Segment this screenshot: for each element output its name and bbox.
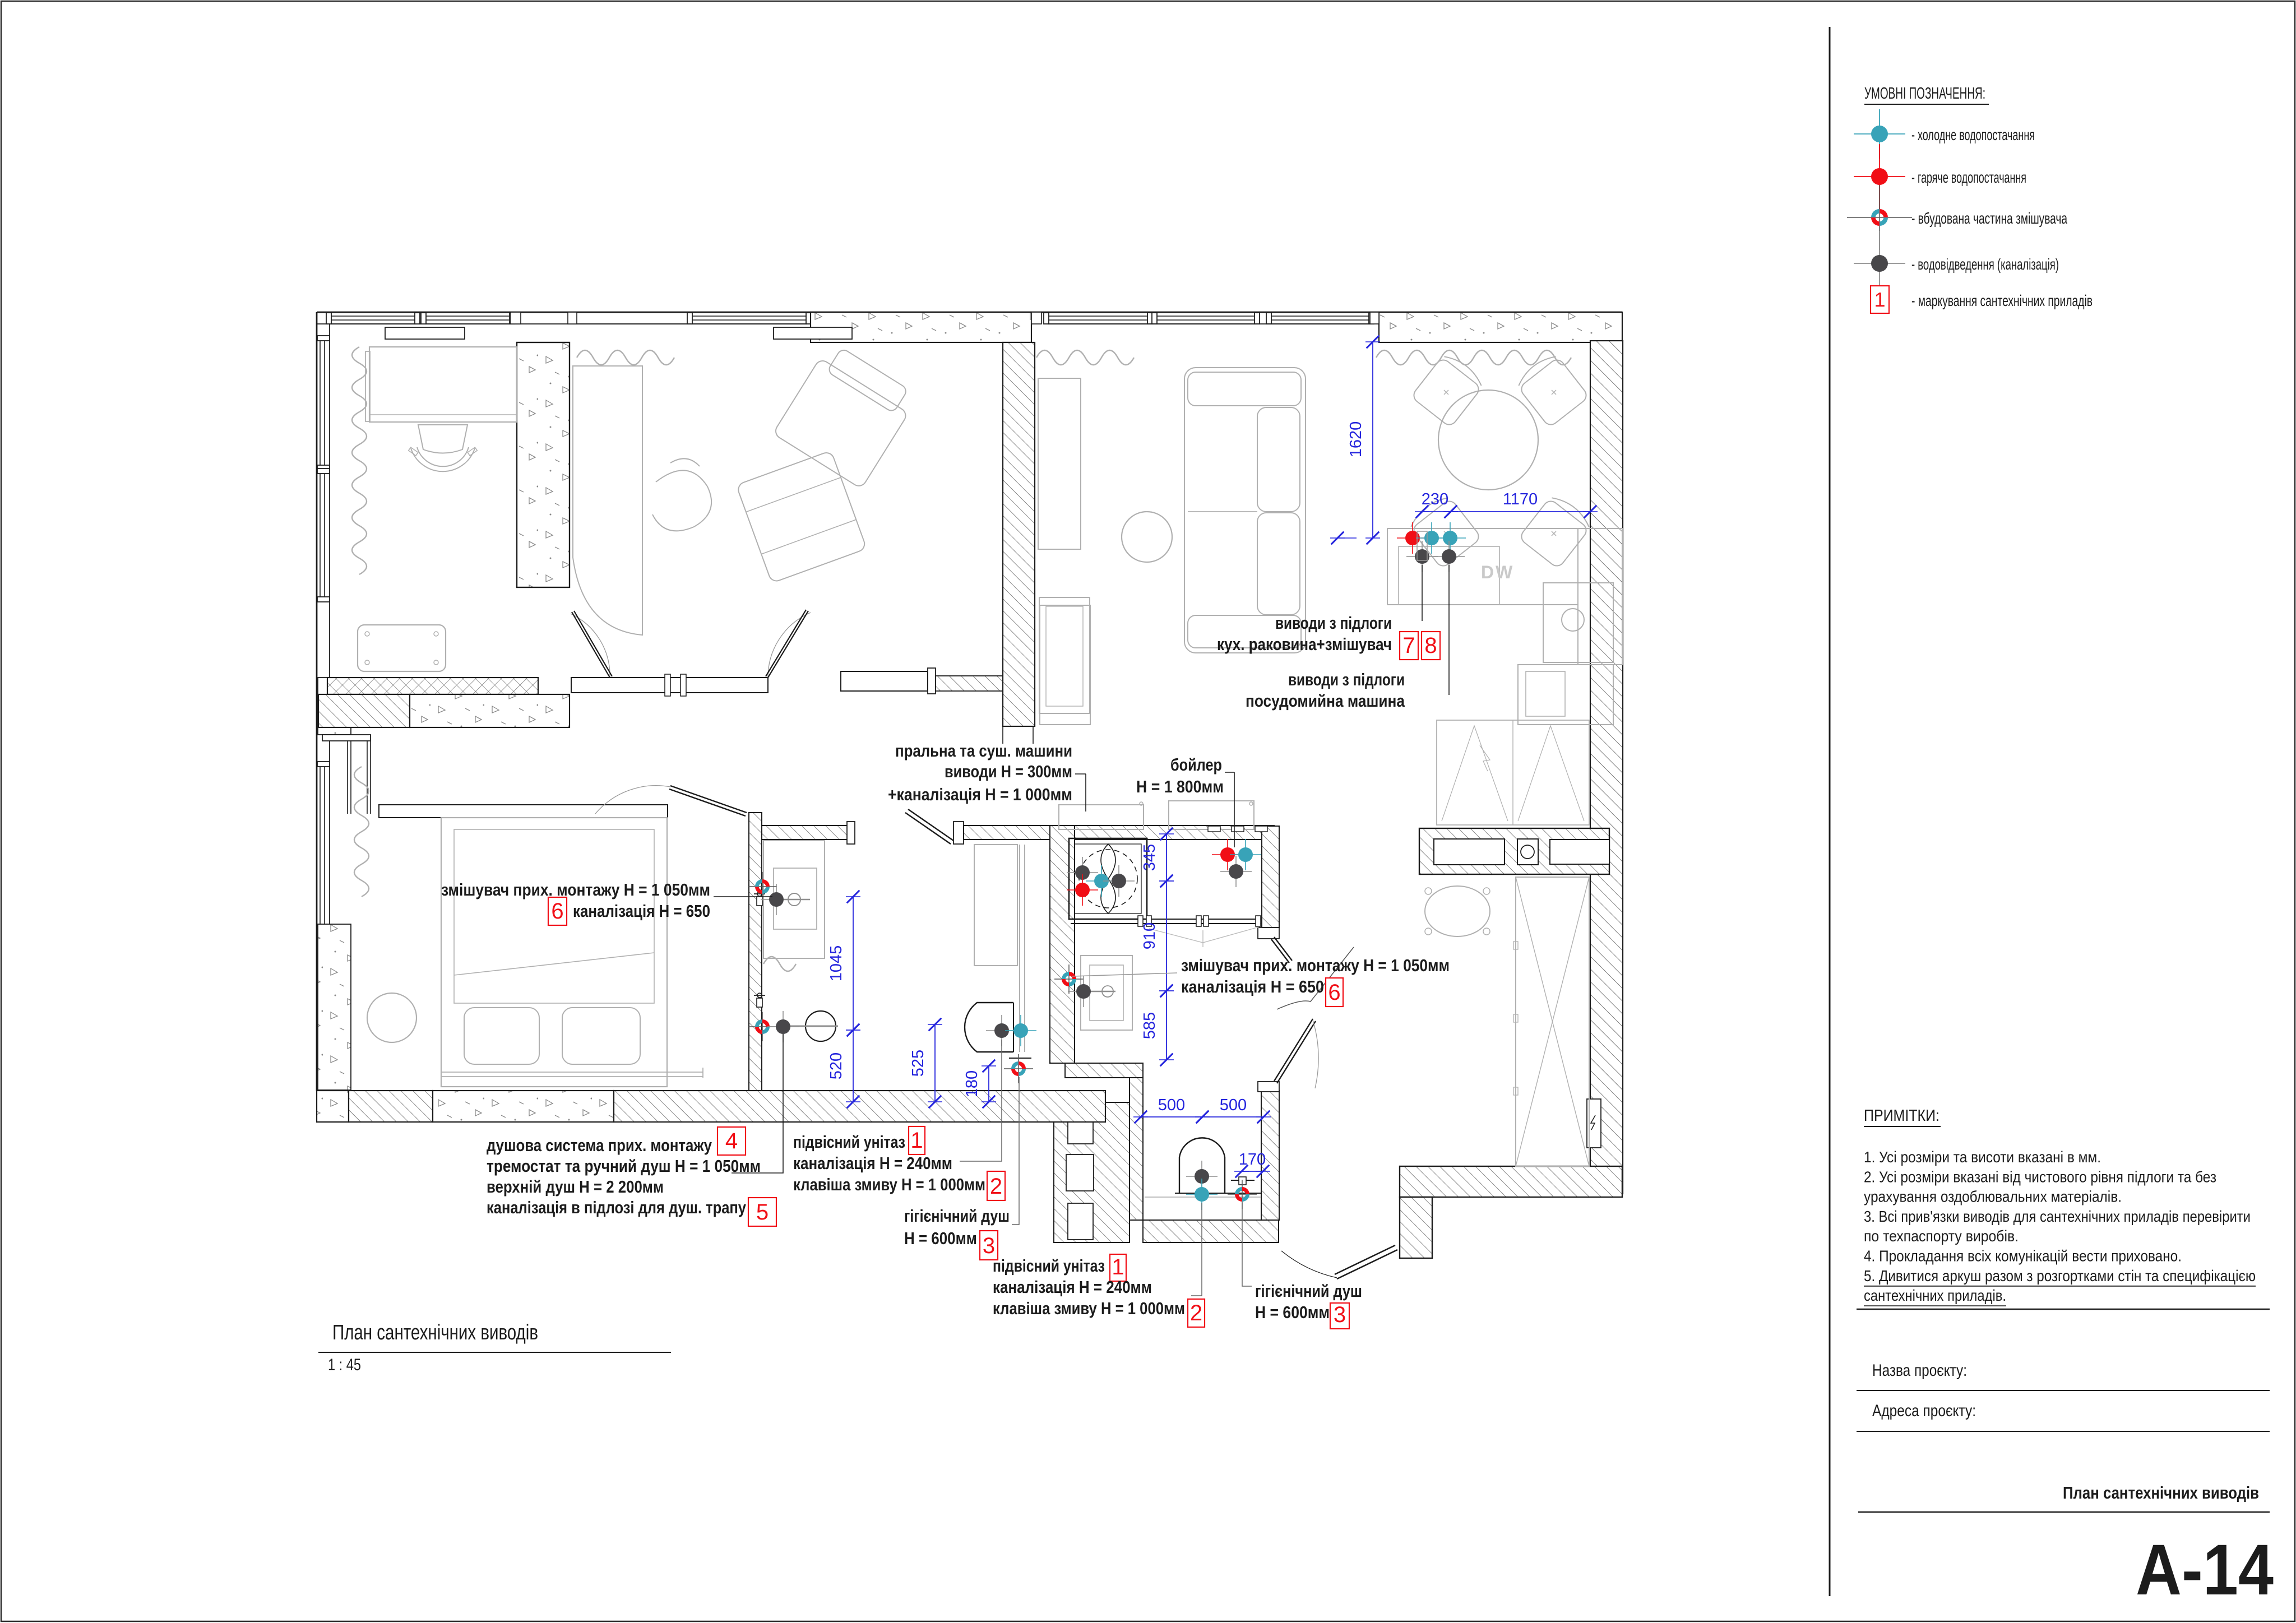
svg-text:3: 3 bbox=[1334, 1302, 1346, 1327]
svg-text:виводи Н = 300мм: виводи Н = 300мм bbox=[945, 762, 1072, 781]
svg-text:Н = 600мм: Н = 600мм bbox=[1255, 1302, 1330, 1322]
svg-text:+каналізація Н = 1 000мм: +каналізація Н = 1 000мм bbox=[888, 785, 1072, 804]
svg-text:6: 6 bbox=[1328, 980, 1340, 1005]
svg-text:1170: 1170 bbox=[1503, 490, 1538, 508]
svg-text:пральна та суш. машини: пральна та суш. машини bbox=[895, 741, 1072, 761]
svg-text:3: 3 bbox=[983, 1234, 995, 1258]
svg-text:525: 525 bbox=[909, 1050, 927, 1077]
svg-text:520: 520 bbox=[827, 1052, 845, 1079]
svg-text:змішувач прих. монтажу Н = 1 0: змішувач прих. монтажу Н = 1 050мм bbox=[441, 880, 710, 899]
svg-text:4. Прокладання всіх комунікаці: 4. Прокладання всіх комунікацій вести пр… bbox=[1864, 1248, 2182, 1265]
svg-text:180: 180 bbox=[963, 1070, 981, 1097]
svg-text:1: 1 bbox=[1874, 288, 1885, 311]
svg-text:сантехнічних приладів.: сантехнічних приладів. bbox=[1864, 1287, 2006, 1304]
svg-text:6: 6 bbox=[551, 899, 563, 924]
svg-text:1 : 45: 1 : 45 bbox=[328, 1356, 361, 1374]
svg-text:Адреса проєкту:: Адреса проєкту: bbox=[1872, 1402, 1976, 1420]
svg-text:170: 170 bbox=[1239, 1151, 1266, 1168]
svg-text:гігієнічний душ: гігієнічний душ bbox=[904, 1206, 1010, 1226]
svg-text:душова система прих. монтажу: душова система прих. монтажу bbox=[487, 1135, 712, 1155]
svg-text:УМОВНІ ПОЗНАЧЕННЯ:: УМОВНІ ПОЗНАЧЕННЯ: bbox=[1864, 85, 1985, 103]
svg-text:План сантехнічних виводів: План сантехнічних виводів bbox=[332, 1321, 538, 1344]
svg-text:DW: DW bbox=[1481, 562, 1514, 582]
svg-text:2: 2 bbox=[1190, 1301, 1202, 1325]
svg-text:гігієнічний душ: гігієнічний душ bbox=[1255, 1281, 1362, 1301]
svg-text:змішувач прих. монтажу Н = 1 0: змішувач прих. монтажу Н = 1 050мм bbox=[1181, 956, 1450, 975]
svg-text:1: 1 bbox=[1112, 1255, 1124, 1279]
svg-text:2: 2 bbox=[990, 1174, 1002, 1199]
svg-text:клавіша змиву Н = 1 000мм: клавіша змиву Н = 1 000мм bbox=[793, 1175, 985, 1194]
svg-text:2. Усі розміри вказані від чис: 2. Усі розміри вказані від чистового рів… bbox=[1864, 1168, 2216, 1185]
svg-text:345: 345 bbox=[1141, 844, 1159, 871]
svg-text:План сантехнічних виводів: План сантехнічних виводів bbox=[2063, 1483, 2259, 1503]
svg-text:8: 8 bbox=[1424, 633, 1437, 658]
svg-text:виводи з підлоги: виводи з підлоги bbox=[1288, 670, 1405, 689]
svg-text:Н = 600мм: Н = 600мм bbox=[904, 1228, 977, 1248]
svg-text:230: 230 bbox=[1422, 490, 1448, 508]
svg-text:підвісний унітаз: підвісний унітаз bbox=[993, 1256, 1105, 1276]
svg-text:5. Дивитися аркуш разом з розг: 5. Дивитися аркуш разом з розгортками ст… bbox=[1864, 1267, 2256, 1285]
svg-text:каналізація Н = 650: каналізація Н = 650 bbox=[1181, 977, 1324, 996]
svg-text:1: 1 bbox=[910, 1128, 923, 1153]
svg-text:кух. раковина+змішувач: кух. раковина+змішувач bbox=[1217, 634, 1392, 654]
svg-text:каналізація Н = 650: каналізація Н = 650 bbox=[573, 901, 710, 921]
svg-text:клавіша змиву Н = 1 000мм: клавіша змиву Н = 1 000мм bbox=[993, 1299, 1185, 1318]
svg-text:1620: 1620 bbox=[1347, 421, 1365, 458]
svg-text:3. Всі прив'язки виводів для с: 3. Всі прив'язки виводів для сантехнічни… bbox=[1864, 1208, 2251, 1225]
svg-text:тремостат та ручний душ Н = 1: тремостат та ручний душ Н = 1 050мм bbox=[487, 1156, 761, 1176]
svg-text:- вбудована частина змішувача: - вбудована частина змішувача bbox=[1911, 210, 2067, 227]
svg-text:верхній душ Н = 2 200мм: верхній душ Н = 2 200мм bbox=[487, 1177, 664, 1197]
svg-text:- гаряче водопостачання: - гаряче водопостачання bbox=[1911, 169, 2026, 186]
svg-text:1. Усі розміри та висоти вказа: 1. Усі розміри та висоти вказані в мм. bbox=[1864, 1148, 2101, 1166]
svg-text:бойлер: бойлер bbox=[1170, 755, 1222, 775]
svg-text:посудомийна машина: посудомийна машина bbox=[1246, 691, 1405, 711]
svg-text:- холодне водопостачання: - холодне водопостачання bbox=[1911, 126, 2035, 143]
svg-text:каналізація Н = 240мм: каналізація Н = 240мм bbox=[993, 1277, 1152, 1297]
svg-text:Н = 1 800мм: Н = 1 800мм bbox=[1136, 777, 1224, 796]
svg-text:- маркування сантехнічних прил: - маркування сантехнічних приладів bbox=[1911, 292, 2093, 309]
svg-text:1045: 1045 bbox=[827, 945, 845, 982]
svg-text:585: 585 bbox=[1141, 1012, 1159, 1039]
svg-text:4: 4 bbox=[725, 1129, 738, 1153]
svg-text:каналізація в підлозі для душ.: каналізація в підлозі для душ. трапу bbox=[487, 1198, 747, 1217]
svg-text:- водовідведення (каналізація): - водовідведення (каналізація) bbox=[1911, 256, 2059, 273]
svg-text:ПРИМІТКИ:: ПРИМІТКИ: bbox=[1864, 1107, 1939, 1125]
svg-text:910: 910 bbox=[1141, 922, 1159, 949]
svg-text:підвісний унітаз: підвісний унітаз bbox=[793, 1132, 905, 1152]
svg-text:Назва проєкту:: Назва проєкту: bbox=[1872, 1361, 1967, 1380]
svg-text:урахування оздоблювальних мате: урахування оздоблювальних матеріалів. bbox=[1864, 1188, 2122, 1205]
svg-text:виводи з підлоги: виводи з підлоги bbox=[1275, 613, 1392, 633]
svg-text:A-14: A-14 bbox=[2136, 1530, 2274, 1610]
svg-text:5: 5 bbox=[756, 1200, 769, 1225]
svg-text:каналізація Н = 240мм: каналізація Н = 240мм bbox=[793, 1153, 952, 1173]
svg-text:500: 500 bbox=[1220, 1096, 1247, 1114]
svg-text:7: 7 bbox=[1402, 633, 1415, 658]
svg-text:500: 500 bbox=[1158, 1096, 1185, 1114]
svg-text:по техпаспорту виробів.: по техпаспорту виробів. bbox=[1864, 1227, 2019, 1245]
